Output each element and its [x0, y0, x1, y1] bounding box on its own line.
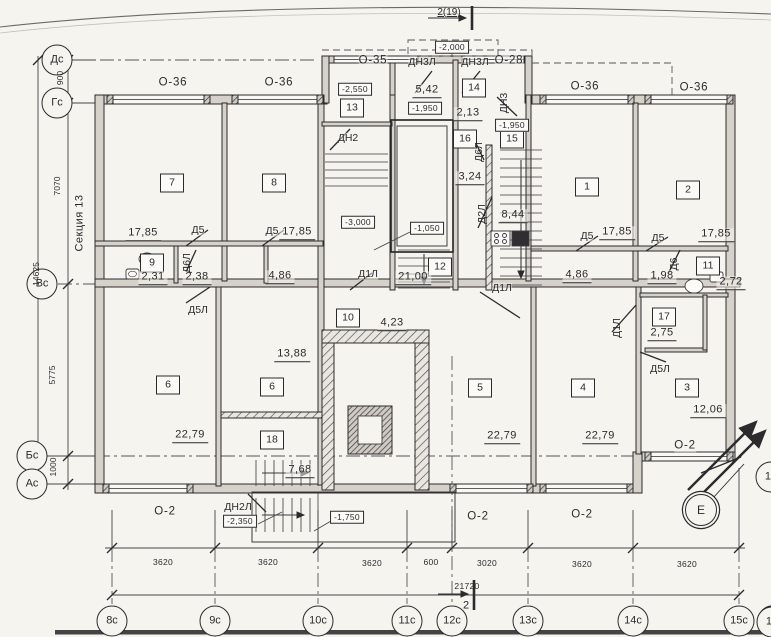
room-1: 1 — [575, 178, 599, 197]
door-d5-1: Д5 — [192, 225, 205, 236]
area-tambour: 2,13 — [453, 107, 482, 121]
axis-bc: Бс — [17, 441, 48, 472]
door-d6l: Д6Л — [182, 253, 193, 273]
dim-3620-2: 3620 — [258, 558, 278, 567]
dim-5775: 5775 — [48, 366, 57, 385]
plan-labels: ДсГсВсБсАс8с9с10с11с12с13с14с15с15Е15781… — [0, 0, 771, 637]
elev-2350: -2,350 — [223, 515, 257, 528]
axis-9c: 9с — [200, 606, 231, 637]
axis-11c: 11с — [392, 606, 423, 637]
elev-2550: -2,550 — [338, 83, 372, 96]
room-7: 7 — [160, 174, 184, 193]
room-5: 5 — [468, 379, 492, 398]
axis-15c: 15с — [724, 606, 755, 637]
door-d5-3: Д5 — [581, 231, 594, 242]
room-3: 3 — [675, 379, 699, 398]
area-hall-right: 4,86 — [562, 269, 591, 283]
door-dn2l: ДН2Л — [224, 502, 251, 513]
axis-8c: 8с — [97, 606, 128, 637]
room-12: 12 — [428, 258, 452, 277]
dim-1000: 1000 — [49, 458, 58, 477]
axis-13c: 13с — [513, 606, 544, 637]
dim-14625: 14625 — [32, 262, 41, 286]
door-d6l-stair: Д6Л — [474, 142, 485, 162]
dim-3620-4: 3620 — [572, 560, 592, 569]
door-d5-2: Д5 — [266, 226, 279, 237]
door-dn3l-2: ДН3Л — [461, 57, 488, 68]
win-o2-2: О-2 — [467, 511, 489, 523]
win-o35: О-35 — [359, 55, 388, 67]
door-d5-4: Д5 — [652, 233, 665, 244]
area-lobby: 5,42 — [412, 84, 441, 98]
door-dn3l-1: ДН3Л — [408, 57, 435, 68]
door-d5l-1: Д5Л — [188, 305, 208, 316]
area-corridor: 21,00 — [395, 271, 431, 285]
elev-porch-top: -2,000 — [435, 41, 469, 54]
axis-gc: Гс — [42, 88, 73, 119]
room-8: 8 — [262, 174, 286, 193]
door-d6: Д6 — [669, 258, 680, 271]
area-18: 7,68 — [285, 464, 314, 478]
win-o36-4: О-36 — [680, 82, 709, 94]
elev-1950-right: -1,950 — [495, 119, 529, 132]
dim-21720: 21720 — [454, 582, 479, 591]
room-6b: 6 — [260, 378, 284, 397]
area-5: 22,79 — [484, 430, 520, 444]
door-d1l-2: Д1Л — [492, 283, 512, 294]
room-18: 18 — [260, 431, 284, 450]
room-6a: 6 — [156, 376, 180, 395]
door-d5l-2: Д5Л — [650, 364, 670, 375]
dim-3620-1: 3620 — [153, 558, 173, 567]
dim-3620-5: 3620 — [677, 560, 697, 569]
win-o2-3: О-2 — [571, 509, 593, 521]
room-2: 2 — [676, 181, 700, 200]
area-1: 17,85 — [599, 226, 635, 240]
area-8: 17,85 — [279, 226, 315, 240]
axis-15-partial-cut: 15 — [756, 462, 771, 493]
elev-1750: -1,750 — [330, 511, 364, 524]
elev-1050: -1,050 — [410, 222, 444, 235]
dim-3020: 3020 — [477, 559, 497, 568]
dim-7070: 7070 — [53, 177, 62, 196]
area-2: 17,85 — [698, 228, 734, 242]
area-hall-left: 4,86 — [265, 270, 294, 284]
area-3: 12,06 — [690, 404, 726, 418]
elev-3000: -3,000 — [341, 216, 375, 229]
area-6b: 13,88 — [274, 348, 310, 362]
door-dn2: ДН2 — [338, 133, 359, 144]
win-o36-3: О-36 — [571, 81, 600, 93]
room-14: 14 — [462, 79, 486, 98]
room-13: 13 — [340, 99, 364, 118]
door-d2l: Д2Л — [477, 204, 488, 224]
area-closet-right: 1,98 — [647, 270, 676, 284]
area-4: 22,79 — [582, 430, 618, 444]
door-dn3: ДН3 — [499, 93, 510, 114]
room-17: 17 — [652, 308, 676, 327]
floor-plan-scan: ДсГсВсБсАс8с9с10с11с12с13с14с15с15Е15781… — [0, 0, 771, 637]
area-corr-right: 8,44 — [498, 209, 527, 223]
win-o36-2: О-36 — [265, 77, 294, 89]
door-d1l-1: Д1Л — [358, 269, 378, 280]
dim-900: 900 — [56, 71, 65, 85]
area-stair: 3,24 — [455, 171, 484, 185]
room-15: 15 — [500, 130, 524, 149]
axis-15-partial-bottom: 15 — [757, 607, 771, 637]
area-17: 2,75 — [647, 327, 676, 341]
area-6a: 22,79 — [172, 429, 208, 443]
area-bath-10: 4,23 — [377, 317, 406, 331]
elev-1950-left: -1,950 — [408, 102, 442, 115]
door-d1l-3: Д1Л — [612, 318, 623, 338]
axis-14c: 14с — [618, 606, 649, 637]
win-o28: О-28 — [495, 55, 524, 67]
section-title: Секция 13 — [75, 194, 86, 251]
win-o2-1: О-2 — [154, 506, 176, 518]
win-o2-4: О-2 — [674, 440, 696, 452]
section-marker-top: 2(19) — [437, 8, 460, 18]
area-closet-left: 2,38 — [182, 271, 211, 285]
dim-600: 600 — [423, 558, 438, 567]
room-10: 10 — [336, 309, 360, 328]
axis-e: Е — [685, 494, 717, 526]
axis-10c: 10с — [303, 606, 334, 637]
area-7: 17,85 — [125, 227, 161, 241]
room-4: 4 — [571, 379, 595, 398]
area-bath-11: 2,72 — [716, 276, 745, 290]
axis-ac: Ас — [17, 469, 48, 500]
section-marker-bottom: 2 — [463, 601, 469, 612]
dim-3620-3: 3620 — [362, 559, 382, 568]
area-9: 2,31 — [138, 271, 167, 285]
win-o36-1: О-36 — [159, 77, 188, 89]
room-11: 11 — [696, 257, 720, 276]
